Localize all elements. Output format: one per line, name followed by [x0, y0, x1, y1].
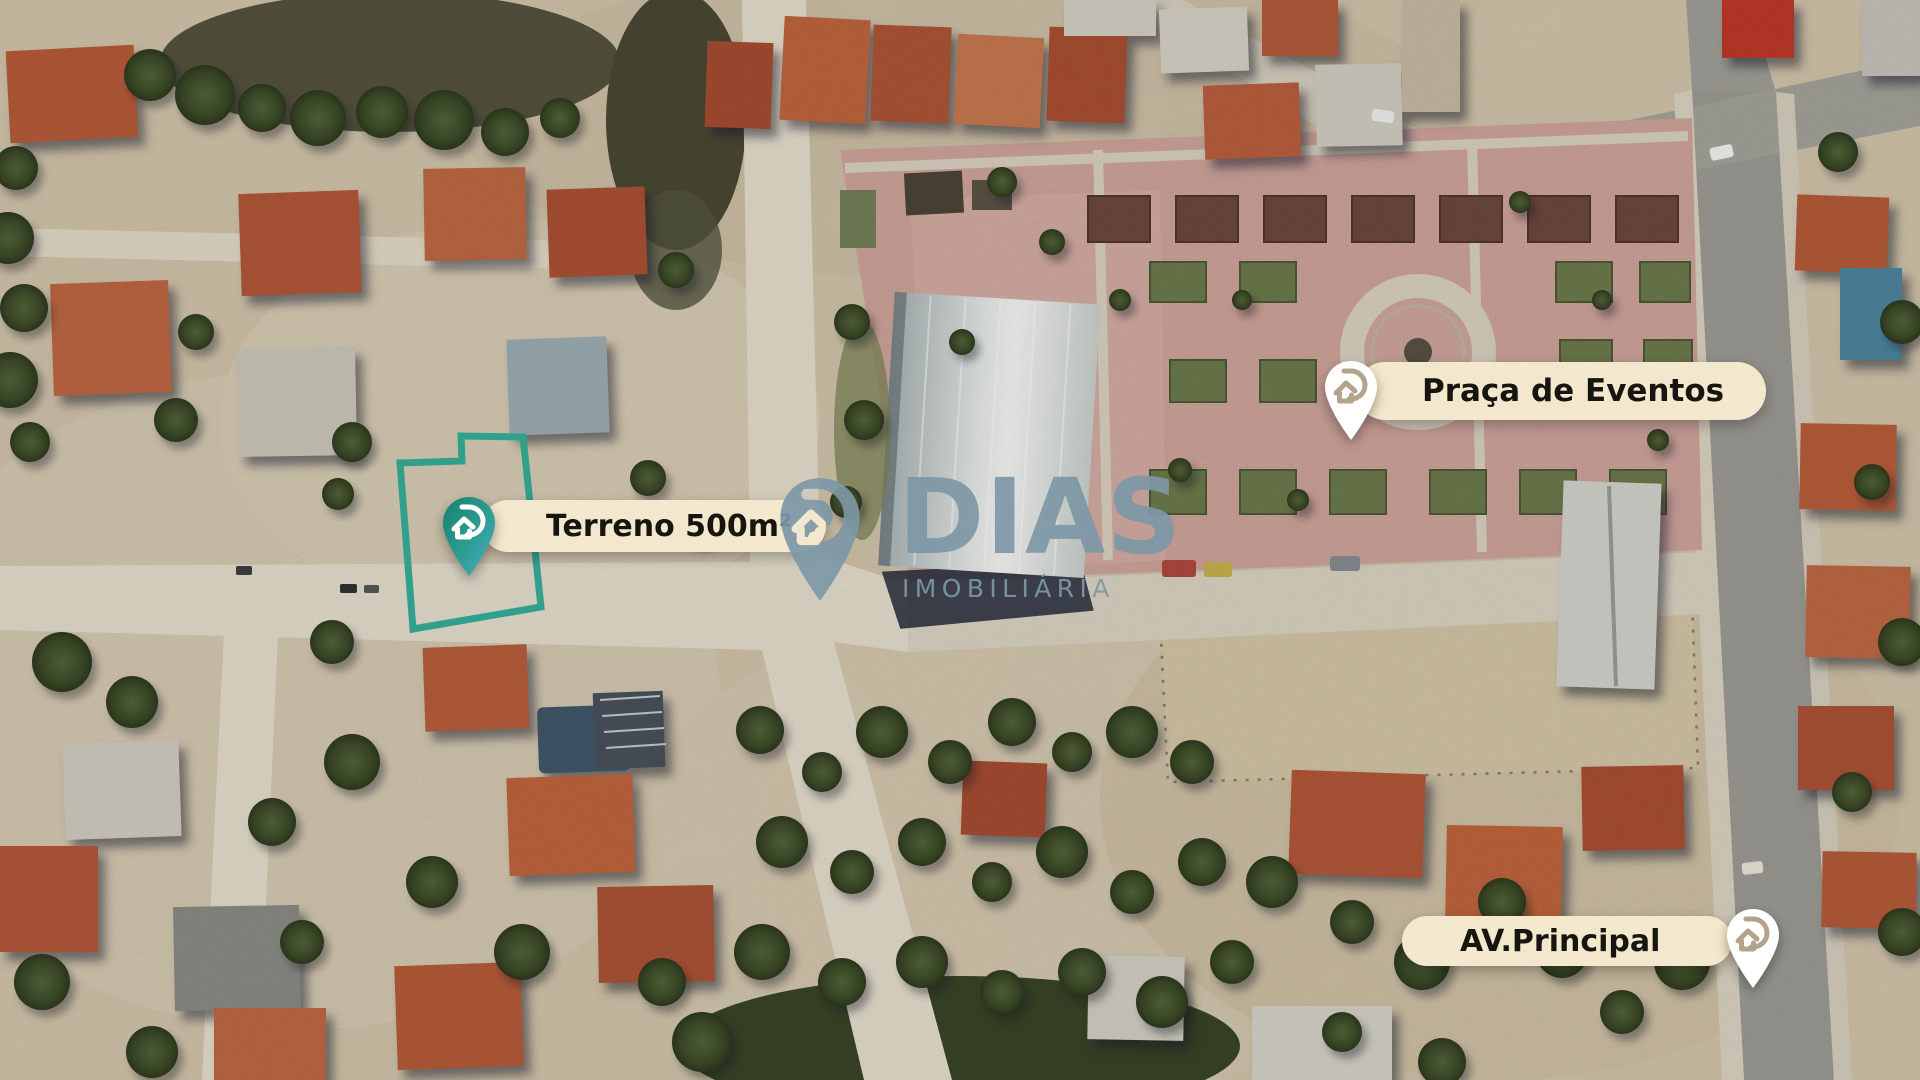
dias-watermark: DIAS IMOBILIÁRIA	[772, 472, 1182, 606]
watermark-tagline: IMOBILIÁRIA	[902, 574, 1182, 603]
praca-pin-icon	[1320, 358, 1382, 442]
watermark-brand: DIAS	[898, 472, 1182, 564]
terreno-label-text: Terreno 500m²	[546, 509, 792, 544]
terreno-pin-icon	[438, 494, 500, 578]
watermark-text: DIAS IMOBILIÁRIA	[898, 472, 1182, 603]
avenida-label-text: AV.Principal	[1460, 924, 1660, 959]
avenida-pin-icon	[1722, 906, 1784, 990]
avenida-label: AV.Principal	[1402, 916, 1732, 966]
dias-logo-pin-icon	[772, 472, 868, 606]
praca-label-text: Praça de Eventos	[1422, 373, 1724, 409]
praca-label: Praça de Eventos	[1356, 362, 1766, 420]
aerial-map: Terreno 500m² Praça de Eventos AV.Princi…	[0, 0, 1920, 1080]
